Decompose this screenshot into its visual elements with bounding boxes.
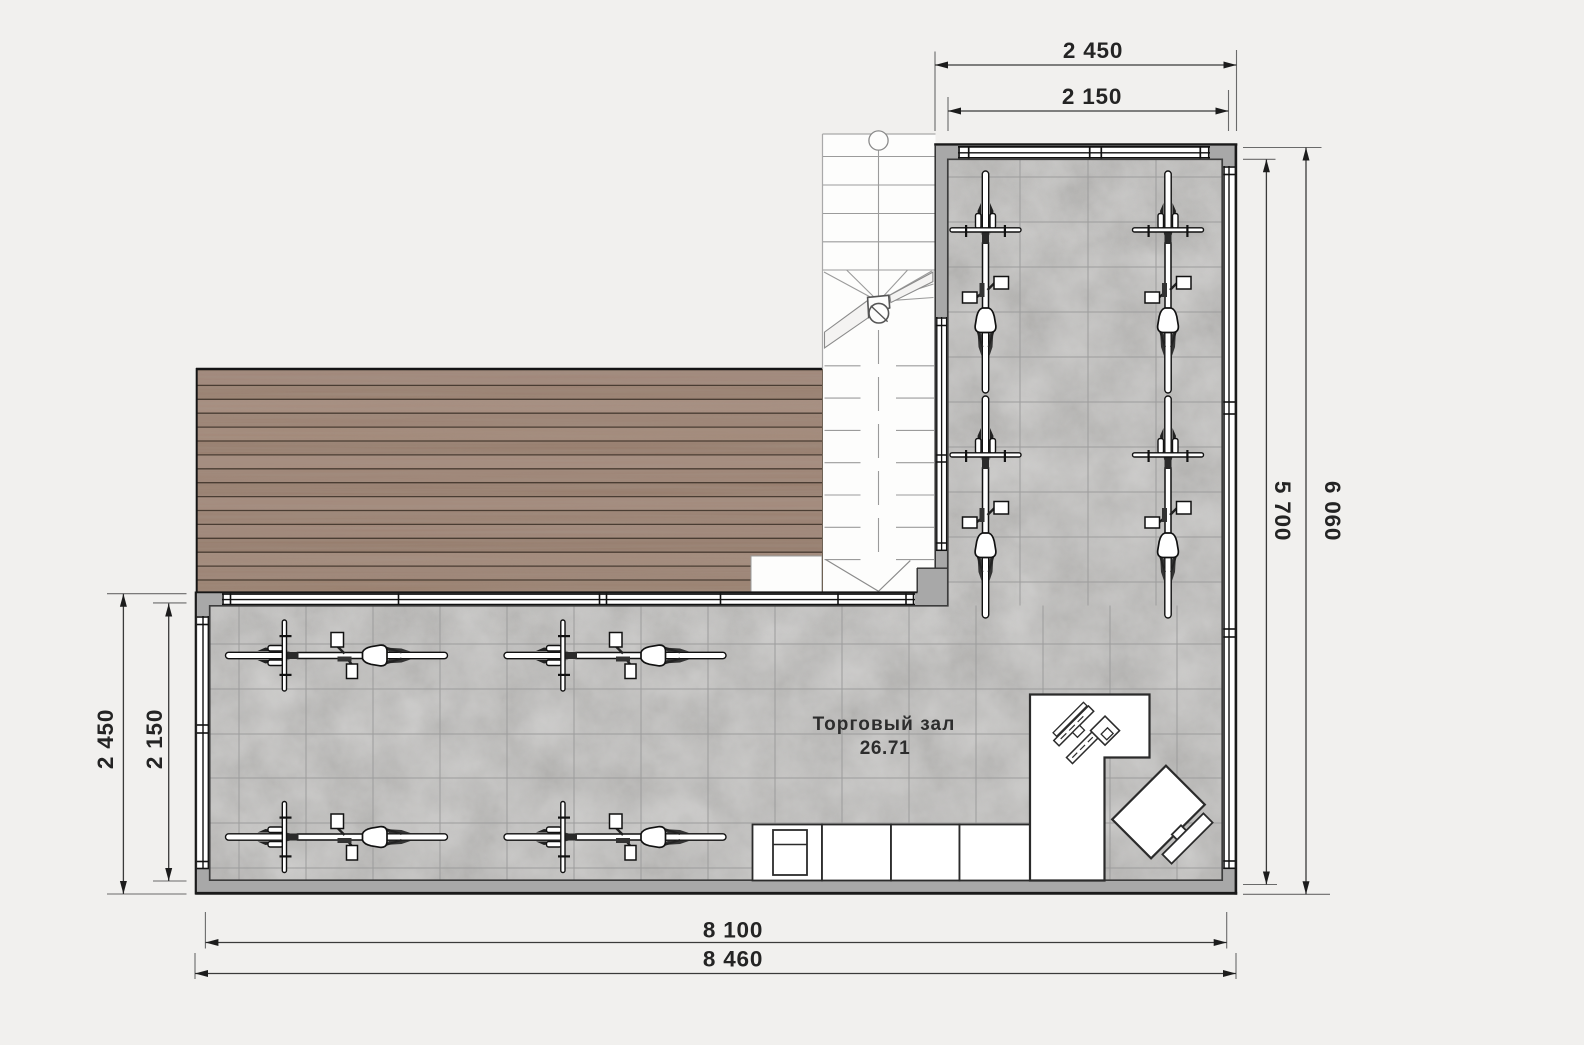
svg-text:2 450: 2 450 — [1063, 38, 1123, 63]
svg-text:26.71: 26.71 — [860, 738, 911, 759]
svg-text:2 150: 2 150 — [142, 709, 167, 769]
svg-text:Торговый зал: Торговый зал — [813, 714, 956, 735]
svg-text:5 700: 5 700 — [1270, 481, 1295, 541]
svg-text:8 100: 8 100 — [703, 918, 763, 943]
svg-text:2 450: 2 450 — [93, 709, 118, 769]
svg-text:2 150: 2 150 — [1062, 84, 1122, 109]
svg-text:8 460: 8 460 — [703, 947, 763, 972]
svg-text:6 060: 6 060 — [1320, 481, 1345, 541]
